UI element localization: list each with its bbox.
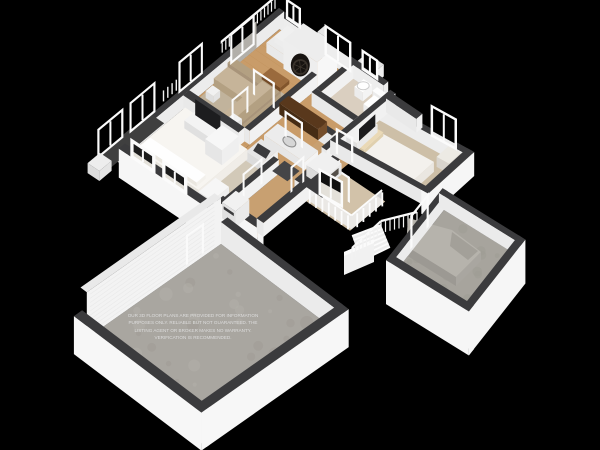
svg-text:PURPOSES ONLY. RELIABLE BUT NO: PURPOSES ONLY. RELIABLE BUT NOT GUARANTE… [128, 320, 257, 325]
svg-text:OUR 3D FLOOR PLANS ARE PROVIDE: OUR 3D FLOOR PLANS ARE PROVIDED FOR INFO… [128, 313, 259, 318]
svg-text:LISTING AGENT OR BROKER MAKES: LISTING AGENT OR BROKER MAKES NO WARRANT… [134, 328, 251, 333]
svg-text:VERIFICATION IS RECOMMENDED.: VERIFICATION IS RECOMMENDED. [155, 335, 232, 340]
